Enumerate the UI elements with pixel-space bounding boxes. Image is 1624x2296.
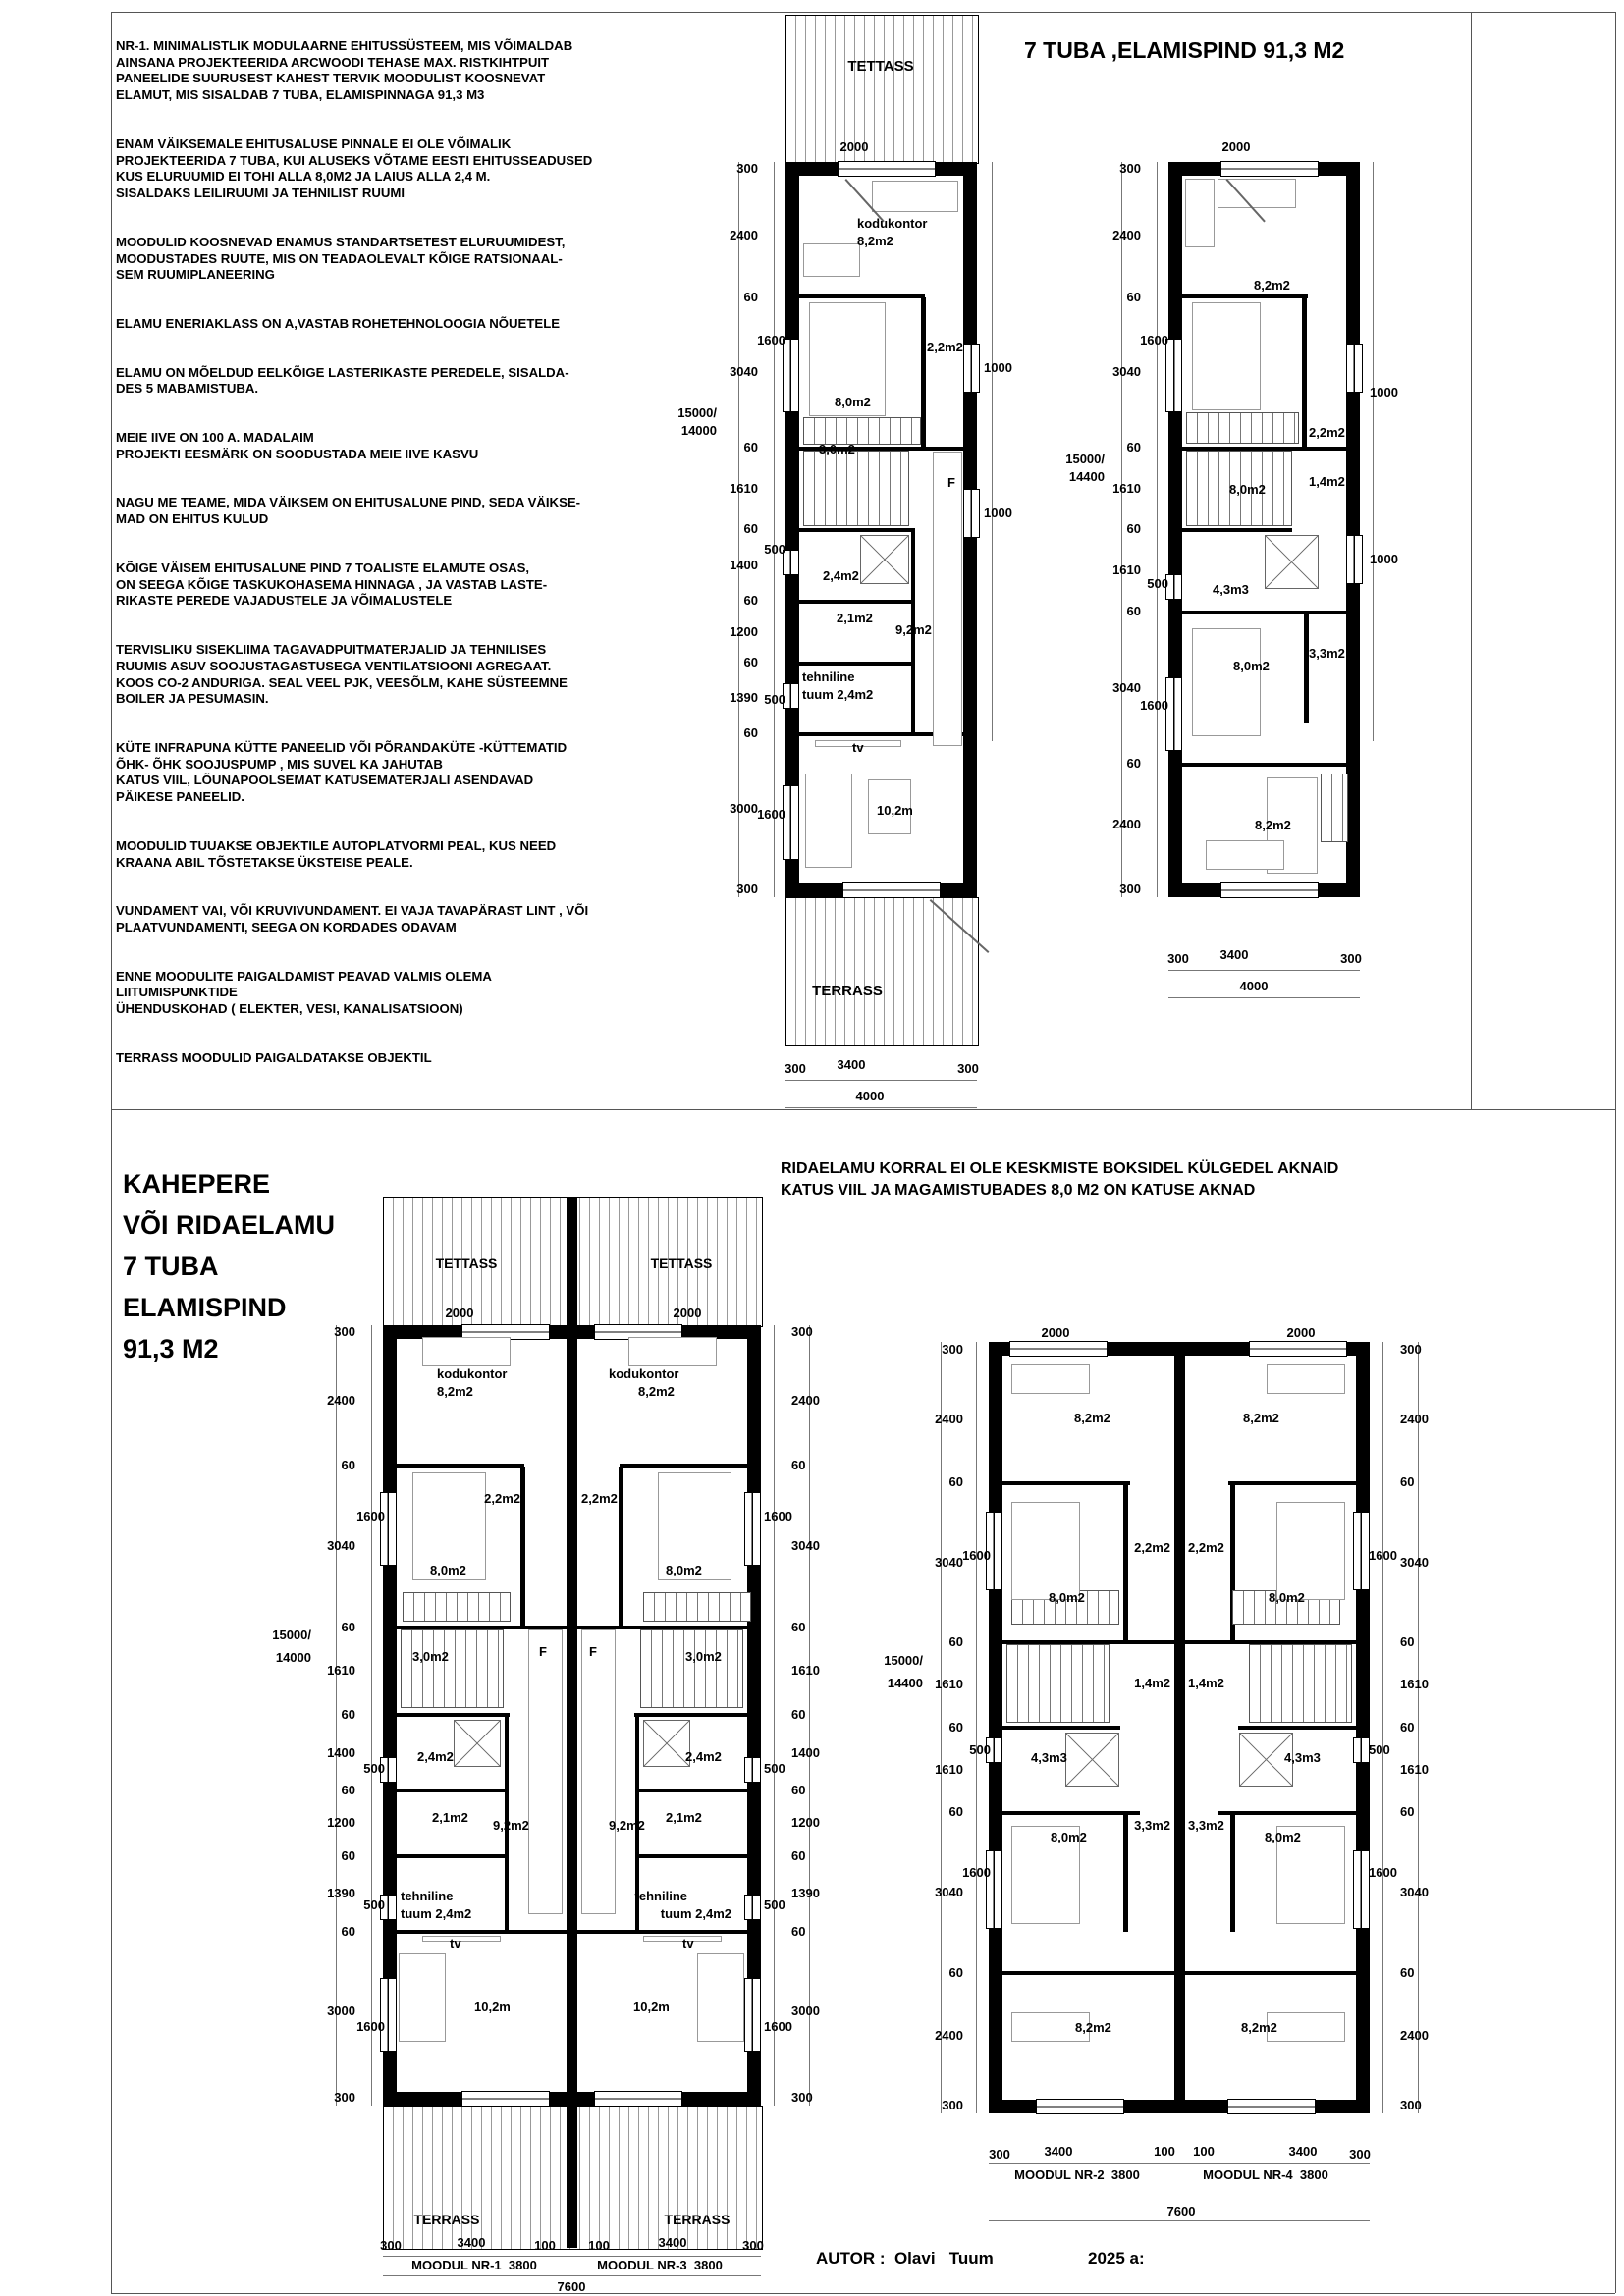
interior-wall bbox=[397, 1789, 509, 1792]
plan-text: 2,4m2 bbox=[823, 568, 859, 584]
furniture bbox=[1192, 628, 1261, 736]
paragraph: ELAMU ENERIAKLASS ON A,VASTAB ROHETEHNOL… bbox=[116, 316, 626, 333]
stairs-hatch bbox=[403, 1592, 511, 1622]
window bbox=[1346, 344, 1363, 393]
plan-text: 1610 bbox=[1400, 1762, 1429, 1778]
paragraph: MOODULID TUUAKSE OBJEKTILE AUTOPLATVORMI… bbox=[116, 838, 626, 872]
dim-line bbox=[1382, 1342, 1383, 2113]
window bbox=[1353, 1512, 1370, 1590]
interior-wall bbox=[1002, 1481, 1130, 1485]
interior-wall bbox=[1230, 1814, 1235, 1932]
plan-text: 8,0m2 bbox=[1051, 1830, 1087, 1845]
plan-text: 3040 bbox=[327, 1538, 355, 1554]
plan-text: 2,1m2 bbox=[432, 1810, 468, 1826]
plan-text: 60 bbox=[744, 725, 758, 741]
window bbox=[744, 1895, 761, 1920]
interior-wall bbox=[397, 1930, 567, 1934]
plan-text: tuum 2,4m2 bbox=[802, 687, 873, 703]
plan-text: 500 bbox=[363, 1897, 385, 1913]
shower-box bbox=[1265, 535, 1319, 589]
plan-text: 300 bbox=[380, 2238, 402, 2254]
stairs-hatch bbox=[1249, 1644, 1352, 1723]
plan-text: 1,4m2 bbox=[1134, 1676, 1170, 1691]
year-label: 2025 a: bbox=[1088, 2249, 1145, 2269]
dim-line bbox=[383, 2256, 761, 2257]
furniture bbox=[1206, 840, 1284, 870]
plan-text: 9,2m2 bbox=[609, 1818, 645, 1834]
window bbox=[963, 489, 980, 538]
plan-text: 60 bbox=[1127, 604, 1141, 619]
plan-text: MOODUL NR-3 3800 bbox=[597, 2258, 723, 2273]
plan-text: TERRASS bbox=[665, 2212, 731, 2229]
plan-text: 4,3m3 bbox=[1213, 582, 1249, 598]
plan-text: 1610 bbox=[1112, 562, 1141, 578]
plan-text: 2400 bbox=[791, 1393, 820, 1409]
plan-text: 100 bbox=[1154, 2144, 1175, 2160]
plan-text: 2,2m2 bbox=[1188, 1540, 1224, 1556]
plan-text: F bbox=[539, 1644, 547, 1660]
plan-text: 1400 bbox=[730, 558, 758, 573]
plan-text: 8,2m2 bbox=[1241, 2020, 1277, 2036]
plan-text: 2400 bbox=[1112, 817, 1141, 832]
plan-text: 60 bbox=[342, 1620, 355, 1635]
plan-text: 8,0m2 bbox=[430, 1563, 466, 1578]
plan-text: 8,2m2 bbox=[1254, 278, 1290, 294]
plan-text: kodukontor bbox=[609, 1366, 679, 1382]
dim-line bbox=[992, 162, 993, 741]
plan-text: 15000/ bbox=[884, 1653, 923, 1669]
furniture bbox=[803, 243, 860, 277]
plan-text: 2400 bbox=[730, 228, 758, 243]
plan-text: 4000 bbox=[856, 1089, 885, 1104]
plan-text: 1610 bbox=[791, 1663, 820, 1679]
plan-text: kodukontor bbox=[437, 1366, 508, 1382]
plan-text: 3400 bbox=[1045, 2144, 1073, 2160]
plan-text: 3400 bbox=[659, 2235, 687, 2251]
plan-text: 8,2m2 bbox=[638, 1384, 675, 1400]
plan-text: 1600 bbox=[1369, 1548, 1397, 1564]
interior-wall bbox=[1185, 1971, 1357, 1975]
paragraph: MEIE IIVE ON 100 A. MADALAIM PROJEKTI EE… bbox=[116, 430, 626, 463]
paragraph: ENAM VÄIKSEMALE EHITUSALUSE PINNALE EI O… bbox=[116, 136, 626, 202]
plan-text: 2,1m2 bbox=[666, 1810, 702, 1826]
stairs-hatch bbox=[803, 417, 921, 445]
paragraph: TERVISLIKU SISEKLIIMA TAGAVADPUITMATERJA… bbox=[116, 642, 626, 708]
plan-text: 2400 bbox=[935, 1412, 963, 1427]
window bbox=[1220, 161, 1319, 177]
author-label: AUTOR : Olavi Tuum bbox=[816, 2249, 994, 2269]
plan-text: 60 bbox=[1400, 1965, 1414, 1981]
plan-text: tuum 2,4m2 bbox=[401, 1906, 471, 1922]
plan-text: 3,3m2 bbox=[1188, 1818, 1224, 1834]
window bbox=[1165, 677, 1182, 751]
window bbox=[1249, 1341, 1347, 1357]
plan-text: 60 bbox=[342, 1707, 355, 1723]
interior-wall bbox=[397, 1713, 510, 1717]
plan-text: 3040 bbox=[935, 1555, 963, 1571]
plan-text: 300 bbox=[1167, 951, 1189, 967]
plan-text: 1600 bbox=[757, 333, 785, 348]
furniture bbox=[528, 1629, 563, 1914]
plan-text: 8,2m2 bbox=[1243, 1411, 1279, 1426]
window bbox=[1353, 1850, 1370, 1929]
plan-text: 300 bbox=[736, 161, 758, 177]
paragraph: ELAMU ON MÕELDUD EELKÕIGE LASTERIKASTE P… bbox=[116, 365, 626, 399]
plan-text: 1,4m2 bbox=[1188, 1676, 1224, 1691]
window bbox=[783, 339, 799, 412]
plan-text: tehniline bbox=[802, 669, 854, 685]
plan-text: 4,3m3 bbox=[1031, 1750, 1067, 1766]
plan-text: 8,0m2 bbox=[1265, 1830, 1301, 1845]
interior-wall bbox=[799, 662, 915, 666]
plan-text: 60 bbox=[949, 1965, 963, 1981]
frame-inner-vertical bbox=[1471, 12, 1472, 1109]
dim-line bbox=[785, 1080, 977, 1081]
ridaelamu-note: RIDAELAMU KORRAL EI OLE KESKMISTE BOKSID… bbox=[781, 1158, 1338, 1201]
plan-text: 500 bbox=[969, 1742, 991, 1758]
plan-text: 15000/ bbox=[677, 405, 717, 421]
furniture bbox=[422, 1936, 501, 1942]
plan-text: 4000 bbox=[1240, 979, 1269, 994]
plan-text: 2,2m2 bbox=[927, 340, 963, 355]
interior-wall bbox=[634, 1713, 747, 1717]
stairs-hatch bbox=[1186, 412, 1299, 444]
furniture bbox=[422, 1337, 511, 1366]
interior-wall bbox=[397, 1464, 524, 1468]
plan-text: tv bbox=[682, 1936, 694, 1951]
window bbox=[838, 161, 936, 177]
window bbox=[1227, 2099, 1316, 2114]
dim-line bbox=[738, 162, 739, 897]
plan-text: 1600 bbox=[356, 1509, 385, 1524]
plan-text: 8,2m2 bbox=[1255, 818, 1291, 833]
paragraph: TERRASS MOODULID PAIGALDATAKSE OBJEKTIL bbox=[116, 1050, 626, 1067]
interior-wall bbox=[1182, 294, 1308, 298]
plan-text: 60 bbox=[791, 1458, 805, 1473]
furniture bbox=[1267, 2012, 1345, 2042]
plan-text: 300 bbox=[957, 1061, 979, 1077]
furniture bbox=[628, 1337, 717, 1366]
plan-text: 3040 bbox=[935, 1885, 963, 1900]
plan-text: 1610 bbox=[1112, 481, 1141, 497]
window bbox=[963, 344, 980, 393]
plan-text: 1600 bbox=[1140, 698, 1168, 714]
page-title: 7 TUBA ,ELAMISPIND 91,3 M2 bbox=[1024, 37, 1344, 64]
plan-text: 1390 bbox=[327, 1886, 355, 1901]
stairs-hatch bbox=[401, 1629, 504, 1708]
plan-text: 8,0m2 bbox=[1233, 659, 1270, 674]
window bbox=[1009, 1341, 1108, 1357]
plan-text: 1000 bbox=[1370, 552, 1398, 567]
furniture bbox=[1192, 302, 1261, 410]
plan-text: 3,0m2 bbox=[685, 1649, 722, 1665]
plan-text: 2400 bbox=[935, 2028, 963, 2044]
paragraph: VUNDAMENT VAI, VÕI KRUVIVUNDAMENT. EI VA… bbox=[116, 903, 626, 936]
plan-text: 60 bbox=[744, 593, 758, 609]
dim-line bbox=[1418, 1342, 1419, 2113]
plan-text: 60 bbox=[1127, 756, 1141, 772]
plan-text: 2,1m2 bbox=[837, 611, 873, 626]
dim-line bbox=[809, 1325, 810, 2106]
plan-text: 1200 bbox=[730, 624, 758, 640]
interior-wall bbox=[799, 528, 915, 532]
dim-line bbox=[774, 1325, 775, 2106]
plan-text: 3400 bbox=[1289, 2144, 1318, 2160]
duplex-title: KAHEPERE VÕI RIDAELAMU 7 TUBA ELAMISPIND… bbox=[123, 1163, 335, 1369]
dim-line bbox=[383, 2275, 761, 2276]
plan-text: 1600 bbox=[764, 1509, 792, 1524]
paragraph: KÕIGE VÄISEM EHITUSALUNE PIND 7 TOALISTE… bbox=[116, 561, 626, 610]
plan-text: 300 bbox=[791, 1324, 813, 1340]
dim-line bbox=[989, 2220, 1370, 2221]
plan-text: 3000 bbox=[730, 801, 758, 817]
plan-text: 100 bbox=[534, 2238, 556, 2254]
plan-text: 7600 bbox=[1167, 2204, 1196, 2219]
interior-wall bbox=[1123, 1814, 1128, 1932]
paragraph: ENNE MOODULITE PAIGALDAMIST PEAVAD VALMI… bbox=[116, 969, 626, 1018]
stairs-hatch bbox=[1321, 774, 1348, 842]
terrace-hatch bbox=[785, 897, 979, 1046]
interior-wall bbox=[1302, 297, 1307, 447]
paragraph: NR-1. MINIMALISTLIK MODULAARNE EHITUSSÜS… bbox=[116, 38, 626, 104]
window bbox=[1353, 1737, 1370, 1763]
shower-box bbox=[1065, 1733, 1119, 1787]
furniture bbox=[1011, 1364, 1090, 1394]
interior-wall bbox=[921, 297, 926, 447]
window bbox=[744, 1757, 761, 1783]
interior-wall bbox=[1304, 614, 1309, 723]
window bbox=[380, 1492, 397, 1566]
plan-text: 3040 bbox=[1400, 1555, 1429, 1571]
plan-text: 1000 bbox=[1370, 385, 1398, 400]
interior-wall bbox=[620, 1464, 747, 1468]
plan-text: 9,2m2 bbox=[493, 1818, 529, 1834]
plan-text: 60 bbox=[791, 1620, 805, 1635]
plan-text: 60 bbox=[949, 1804, 963, 1820]
plan-text: tehniline bbox=[401, 1889, 453, 1904]
plan-text: 14400 bbox=[1069, 469, 1105, 485]
plan-text: MOODUL NR-1 3800 bbox=[411, 2258, 537, 2273]
window bbox=[1036, 2099, 1124, 2114]
window bbox=[842, 882, 941, 898]
plan-text: 8,2m2 bbox=[857, 234, 893, 249]
plan-text: 60 bbox=[1400, 1634, 1414, 1650]
paragraph: NAGU ME TEAME, MIDA VÄIKSEM ON EHITUSALU… bbox=[116, 495, 626, 528]
plan-text: TETTASS bbox=[436, 1255, 498, 1273]
plan-text: 10,2m bbox=[633, 2000, 670, 2015]
plan-text: MOODUL NR-2 3800 bbox=[1014, 2167, 1140, 2183]
plan-text: F bbox=[589, 1644, 597, 1660]
plan-text: 2000 bbox=[840, 139, 869, 155]
plan-text: 300 bbox=[334, 1324, 355, 1340]
interior-wall bbox=[1174, 1342, 1185, 2113]
plan-text: 60 bbox=[744, 655, 758, 670]
plan-text: 3040 bbox=[1400, 1885, 1429, 1900]
plan-text: 10,2m bbox=[474, 2000, 511, 2015]
plan-text: 14000 bbox=[681, 423, 717, 439]
plan-text: F bbox=[947, 475, 955, 491]
plan-text: 1610 bbox=[327, 1663, 355, 1679]
plan-text: 500 bbox=[1369, 1742, 1390, 1758]
plan-text: 3040 bbox=[1112, 364, 1141, 380]
window bbox=[461, 2091, 550, 2107]
shower-box bbox=[454, 1720, 501, 1767]
plan-text: kodukontor bbox=[857, 216, 928, 232]
plan-text: 60 bbox=[1127, 440, 1141, 455]
plan-text: 1400 bbox=[327, 1745, 355, 1761]
plan-text: 60 bbox=[791, 1924, 805, 1940]
plan-text: 2,4m2 bbox=[685, 1749, 722, 1765]
plan-text: 300 bbox=[1400, 1342, 1422, 1358]
frame-right bbox=[1615, 12, 1616, 2293]
plan-text: 300 bbox=[1119, 161, 1141, 177]
plan-text: 8,0m2 bbox=[1049, 1590, 1085, 1606]
interior-wall bbox=[1182, 763, 1346, 767]
plan-text: 4,3m3 bbox=[1284, 1750, 1321, 1766]
plan-text: 8,2m2 bbox=[1074, 1411, 1110, 1426]
plan-text: 500 bbox=[363, 1761, 385, 1777]
plan-text: 3,3m2 bbox=[1134, 1818, 1170, 1834]
interior-wall bbox=[1182, 528, 1292, 532]
interior-wall bbox=[577, 1930, 747, 1934]
plan-text: 300 bbox=[736, 881, 758, 897]
plan-text: tv bbox=[852, 740, 864, 756]
plan-text: 60 bbox=[949, 1634, 963, 1650]
furniture bbox=[872, 181, 958, 212]
plan-text: 60 bbox=[1127, 521, 1141, 537]
blueprint-page: NR-1. MINIMALISTLIK MODULAARNE EHITUSSÜS… bbox=[0, 0, 1624, 2296]
plan-text: 3000 bbox=[327, 2003, 355, 2019]
plan-text: 3,0m2 bbox=[819, 442, 855, 457]
plan-text: 8,2m2 bbox=[1075, 2020, 1111, 2036]
dim-line bbox=[989, 2163, 1370, 2164]
frame-divider bbox=[111, 1109, 1615, 1110]
plan-text: 60 bbox=[342, 1848, 355, 1864]
window bbox=[986, 1850, 1002, 1929]
stairs-hatch bbox=[1006, 1644, 1110, 1723]
plan-text: 3400 bbox=[458, 2235, 486, 2251]
plan-text: 1600 bbox=[1369, 1865, 1397, 1881]
plan-text: 3,3m2 bbox=[1309, 646, 1345, 662]
interior-wall bbox=[1002, 1811, 1140, 1815]
plan-text: 500 bbox=[764, 692, 785, 708]
window bbox=[1165, 339, 1182, 412]
interior-wall bbox=[567, 1197, 577, 2248]
plan-text: 2000 bbox=[1042, 1325, 1070, 1341]
plan-text: 1200 bbox=[791, 1815, 820, 1831]
plan-text: 1390 bbox=[791, 1886, 820, 1901]
plan-text: 500 bbox=[764, 542, 785, 558]
dim-line bbox=[336, 1325, 337, 2106]
plan-text: 1600 bbox=[757, 807, 785, 823]
paragraph: KÜTE INFRAPUNA KÜTTE PANEELID VÕI PÕRAND… bbox=[116, 740, 626, 806]
plan-text: 8,0m2 bbox=[666, 1563, 702, 1578]
plan-text: 14000 bbox=[276, 1650, 311, 1666]
furniture bbox=[933, 452, 962, 746]
plan-text: 15000/ bbox=[1065, 452, 1105, 467]
dim-line bbox=[371, 1325, 372, 2106]
plan-text: 1610 bbox=[935, 1762, 963, 1778]
plan-text: 60 bbox=[1400, 1804, 1414, 1820]
window bbox=[744, 1978, 761, 2052]
furniture bbox=[1011, 1502, 1080, 1600]
shower-box bbox=[643, 1720, 690, 1767]
plan-text: 1600 bbox=[1140, 333, 1168, 348]
furniture bbox=[1267, 1364, 1345, 1394]
plan-text: 1,4m2 bbox=[1309, 474, 1345, 490]
plan-text: 100 bbox=[588, 2238, 610, 2254]
plan-text: MOODUL NR-4 3800 bbox=[1203, 2167, 1328, 2183]
plan-text: 2000 bbox=[446, 1306, 474, 1321]
plan-text: tuum 2,4m2 bbox=[661, 1906, 731, 1922]
plan-text: tv bbox=[450, 1936, 461, 1951]
plan-text: TERRASS bbox=[812, 983, 883, 1001]
window bbox=[594, 2091, 682, 2107]
shower-box bbox=[860, 535, 909, 584]
plan-text: 2400 bbox=[1112, 228, 1141, 243]
plan-text: 15000/ bbox=[272, 1628, 311, 1643]
dim-line bbox=[1121, 162, 1122, 897]
plan-text: 2400 bbox=[1400, 1412, 1429, 1427]
plan-text: 1400 bbox=[791, 1745, 820, 1761]
plan-text: 60 bbox=[1400, 1720, 1414, 1735]
furniture bbox=[697, 1953, 744, 2042]
plan-text: 60 bbox=[744, 440, 758, 455]
interior-wall bbox=[619, 1467, 623, 1626]
plan-text: 60 bbox=[791, 1783, 805, 1798]
plan-text: 2000 bbox=[674, 1306, 702, 1321]
plan-text: 300 bbox=[742, 2238, 764, 2254]
furniture bbox=[805, 774, 852, 868]
furniture bbox=[399, 1953, 446, 2042]
plan-text: 2,4m2 bbox=[417, 1749, 454, 1765]
interior-wall bbox=[799, 600, 915, 604]
plan-text: 300 bbox=[942, 2098, 963, 2113]
plan-text: 300 bbox=[1400, 2098, 1422, 2113]
plan-text: TERRASS bbox=[414, 2212, 480, 2229]
plan-text: 1610 bbox=[935, 1677, 963, 1692]
plan-text: TETTASS bbox=[651, 1255, 713, 1273]
frame-left bbox=[111, 12, 112, 2293]
interior-wall bbox=[1238, 1726, 1356, 1730]
interior-wall bbox=[799, 294, 925, 298]
plan-text: 60 bbox=[342, 1458, 355, 1473]
plan-text: 300 bbox=[334, 2090, 355, 2106]
dim-line bbox=[785, 1107, 977, 1108]
plan-text: 2,2m2 bbox=[484, 1491, 520, 1507]
interior-wall bbox=[1218, 1811, 1356, 1815]
plan-text: 500 bbox=[1147, 576, 1168, 592]
interior-wall bbox=[1002, 1971, 1174, 1975]
furniture bbox=[581, 1629, 616, 1914]
interior-wall bbox=[1123, 1484, 1128, 1641]
plan-text: 2,2m2 bbox=[1309, 425, 1345, 441]
dim-line bbox=[941, 1342, 942, 2113]
plan-text: 2000 bbox=[1222, 139, 1251, 155]
window bbox=[1346, 535, 1363, 584]
interior-wall bbox=[1228, 1481, 1356, 1485]
paragraph: MOODULID KOOSNEVAD ENAMUS STANDARTSETEST… bbox=[116, 235, 626, 284]
plan-text: 1000 bbox=[984, 506, 1012, 521]
plan-text: 60 bbox=[791, 1707, 805, 1723]
plan-text: 100 bbox=[1193, 2144, 1215, 2160]
plan-text: TETTASS bbox=[847, 58, 913, 77]
terrace-hatch bbox=[785, 15, 979, 164]
dim-line bbox=[976, 1342, 977, 2113]
furniture bbox=[1185, 179, 1215, 247]
plan-text: 1600 bbox=[764, 2019, 792, 2035]
stairs-hatch bbox=[640, 1629, 743, 1708]
